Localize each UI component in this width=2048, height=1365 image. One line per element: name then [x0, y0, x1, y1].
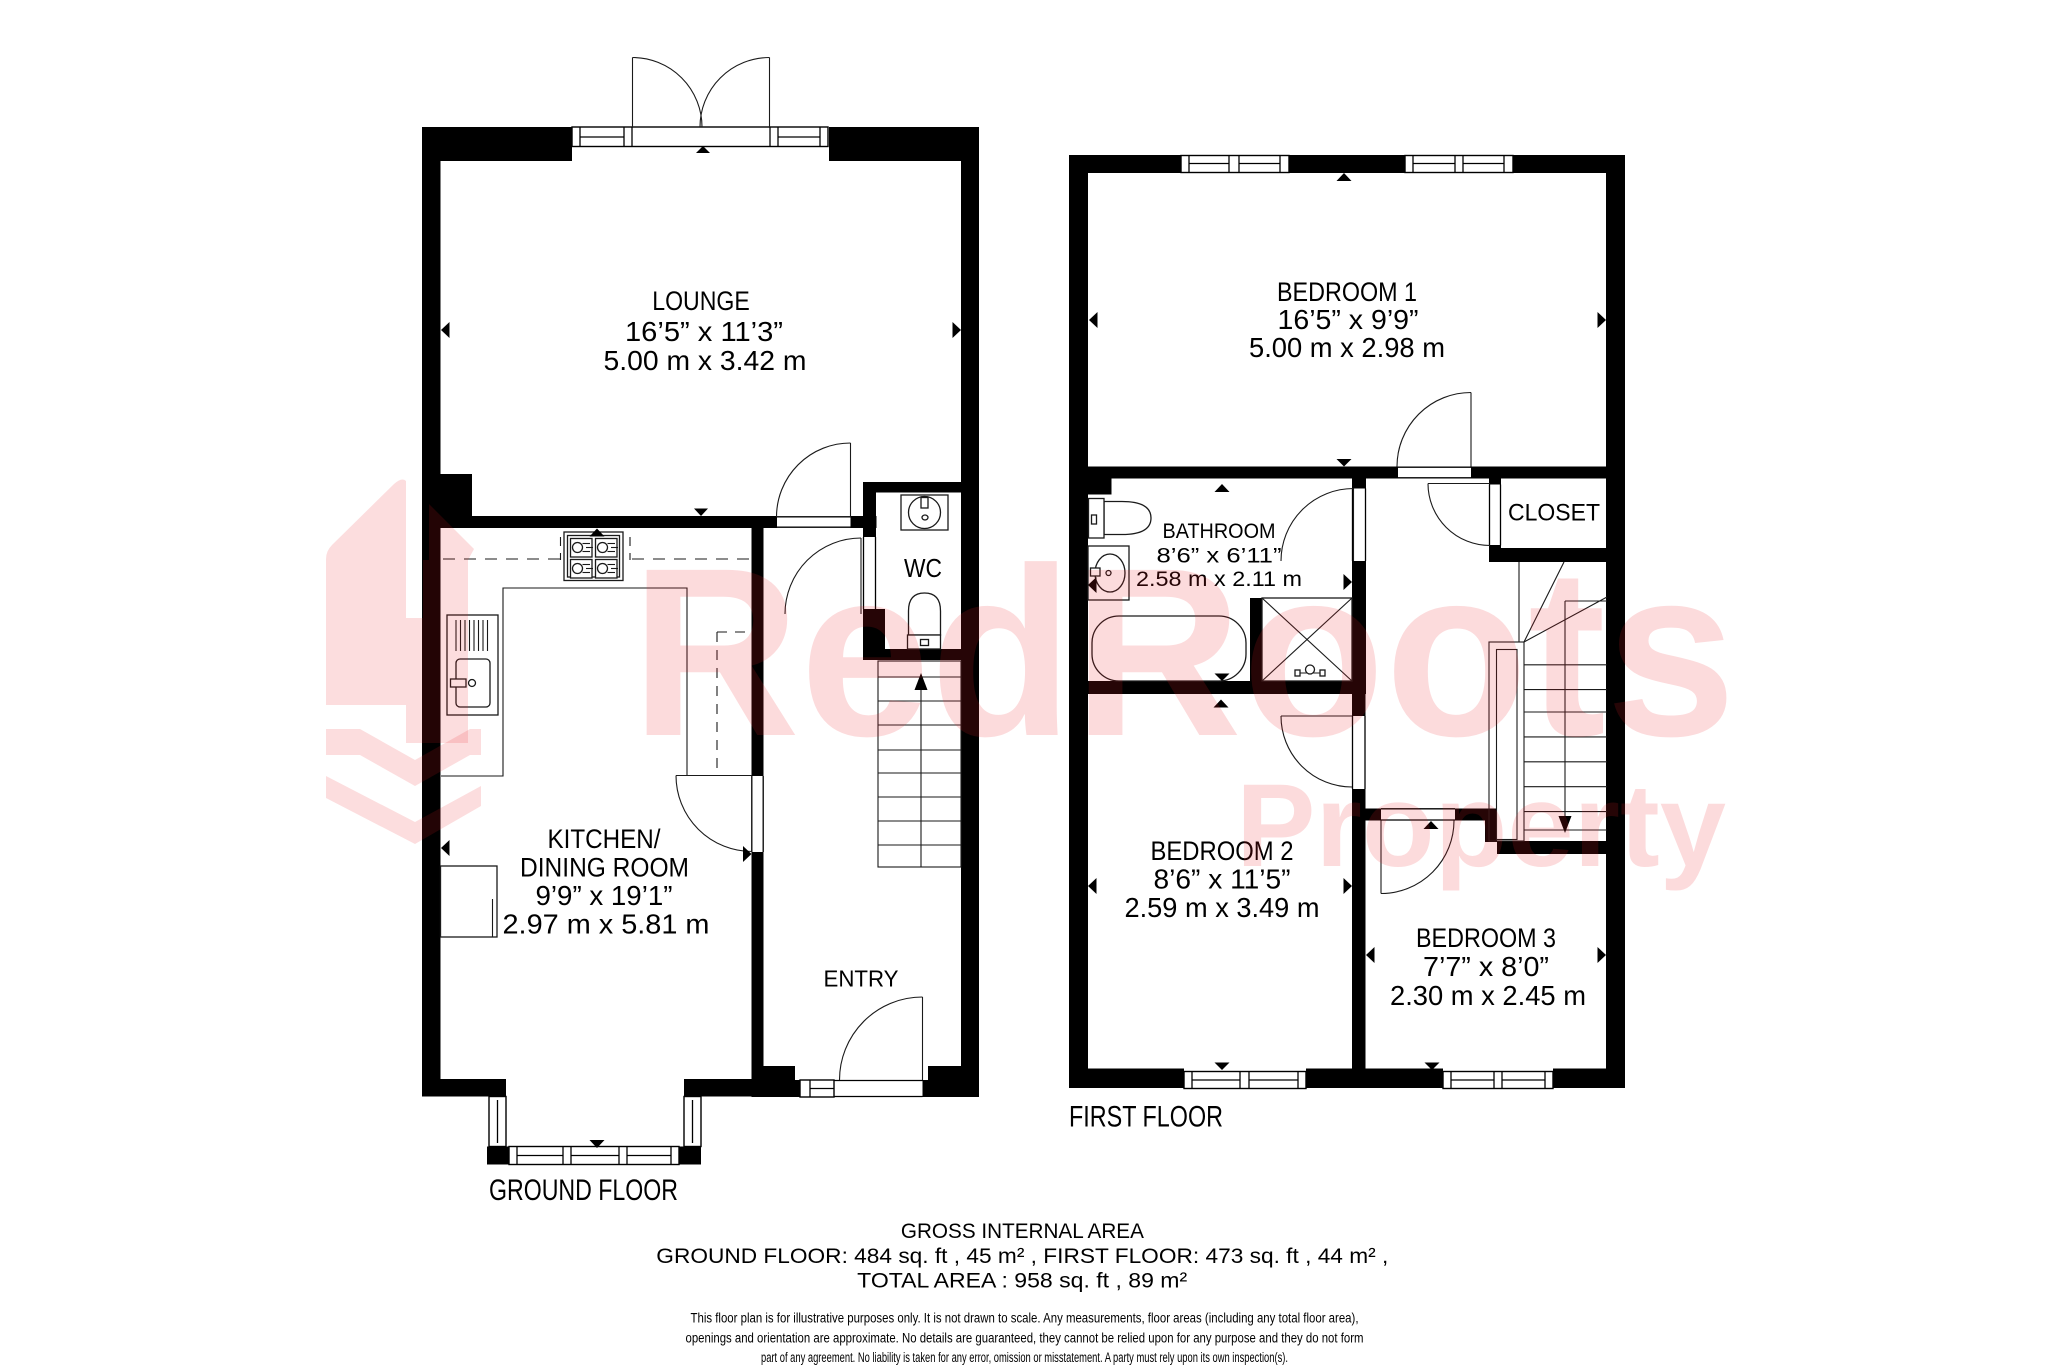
svg-text:part of any agreement. No liab: part of any agreement. No liability is t…: [761, 1350, 1288, 1365]
svg-text:5.00 m x 2.98 m: 5.00 m x 2.98 m: [1249, 332, 1445, 363]
svg-text:9’9” x 19’1”: 9’9” x 19’1”: [536, 880, 673, 911]
svg-text:BEDROOM 3: BEDROOM 3: [1416, 923, 1556, 953]
svg-text:2.97 m x 5.81 m: 2.97 m x 5.81 m: [503, 909, 710, 940]
svg-text:5.00 m x 3.42 m: 5.00 m x 3.42 m: [604, 345, 807, 376]
svg-text:GROUND FLOOR: GROUND FLOOR: [489, 1174, 678, 1207]
svg-text:ENTRY: ENTRY: [824, 966, 899, 992]
svg-text:TOTAL AREA : 958 sq. ft , 89 m: TOTAL AREA : 958 sq. ft , 89 m²: [857, 1269, 1187, 1293]
svg-text:16’5” x 9’9”: 16’5” x 9’9”: [1278, 304, 1419, 335]
svg-text:Property: Property: [1236, 760, 1726, 892]
svg-text:DINING ROOM: DINING ROOM: [520, 853, 689, 883]
svg-text:GROUND FLOOR: 484 sq. ft , 45: GROUND FLOOR: 484 sq. ft , 45 m² , FIRST…: [656, 1244, 1388, 1268]
svg-text:RedRoots: RedRoots: [631, 518, 1736, 786]
svg-text:2.30 m x 2.45 m: 2.30 m x 2.45 m: [1390, 980, 1586, 1011]
svg-text:LOUNGE: LOUNGE: [652, 286, 750, 316]
svg-text:This floor plan is for illustr: This floor plan is for illustrative purp…: [691, 1311, 1359, 1326]
svg-text:FIRST FLOOR: FIRST FLOOR: [1069, 1101, 1223, 1134]
svg-text:BEDROOM 1: BEDROOM 1: [1277, 277, 1417, 307]
svg-text:7’7” x 8’0”: 7’7” x 8’0”: [1423, 951, 1549, 982]
svg-text:KITCHEN/: KITCHEN/: [548, 824, 661, 854]
svg-text:2.59 m x 3.49 m: 2.59 m x 3.49 m: [1125, 892, 1320, 923]
svg-text:16’5” x 11’3”: 16’5” x 11’3”: [625, 316, 783, 347]
svg-text:openings and orientation are a: openings and orientation are approximate…: [686, 1331, 1364, 1346]
svg-text:GROSS INTERNAL AREA: GROSS INTERNAL AREA: [901, 1219, 1145, 1243]
